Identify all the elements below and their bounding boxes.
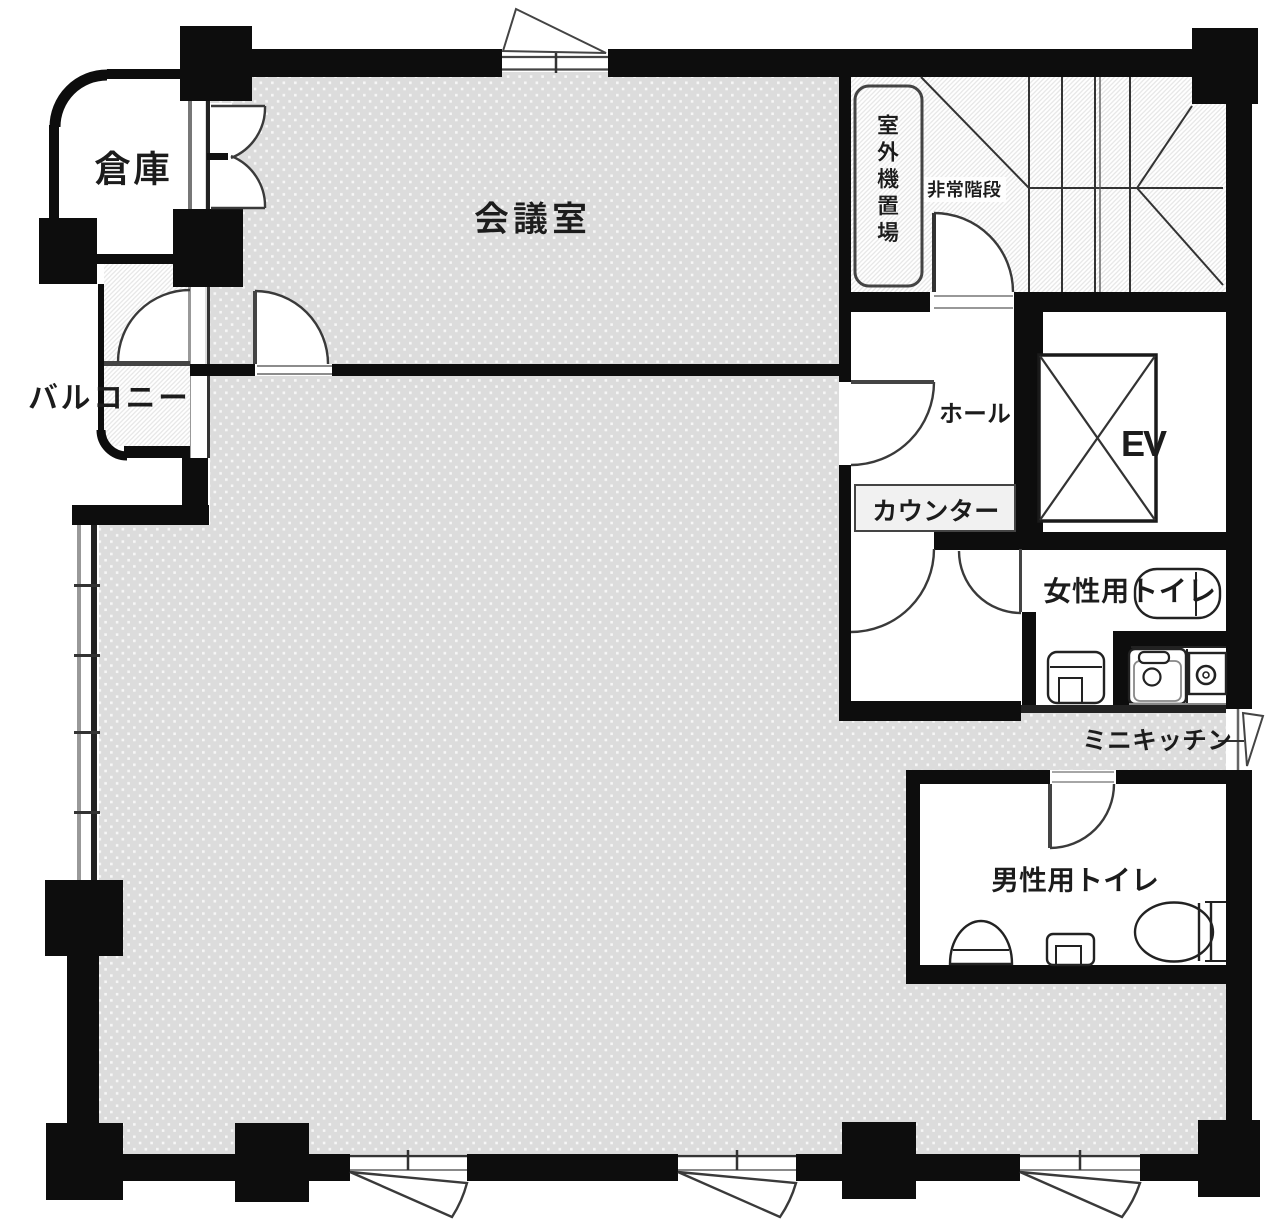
svg-text:EV: EV [1121,423,1167,464]
